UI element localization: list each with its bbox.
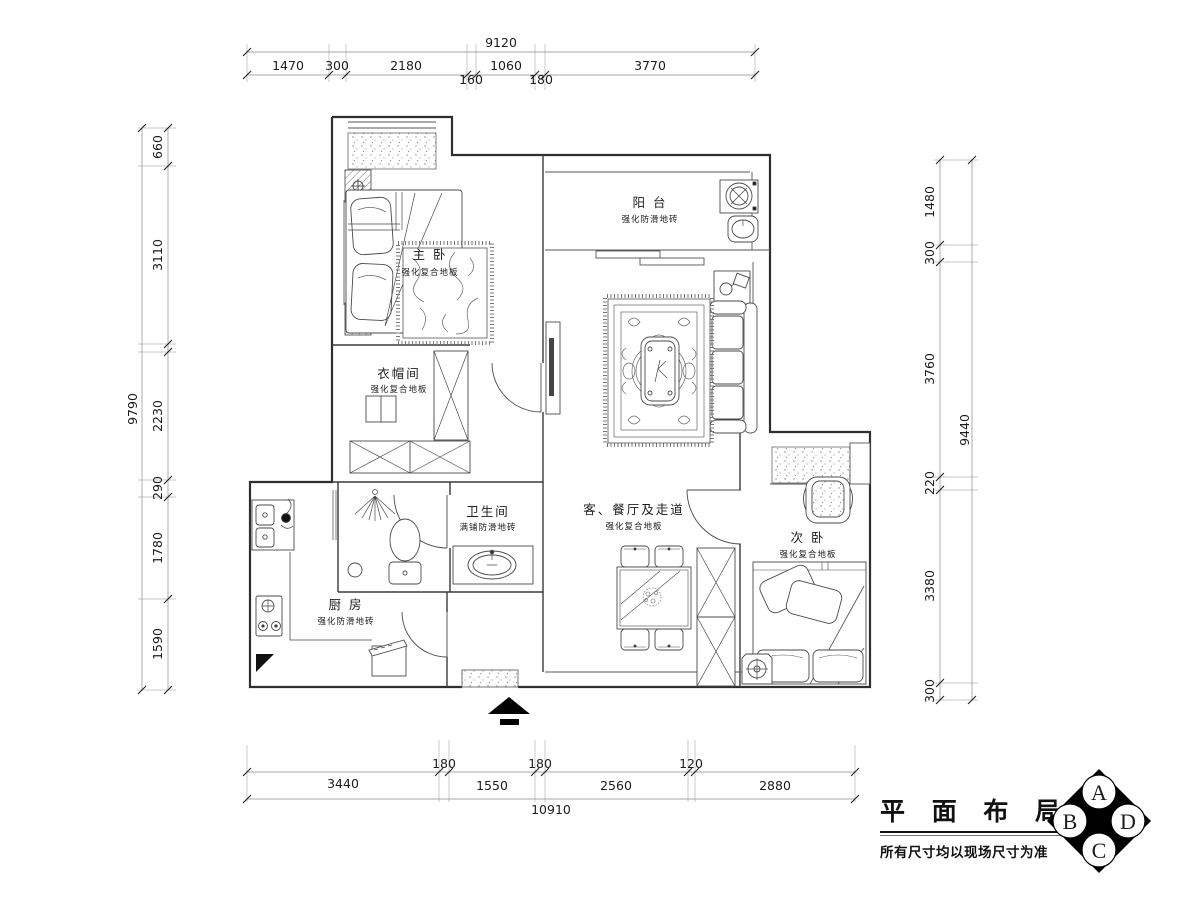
dim-segment: 3760	[922, 353, 937, 385]
washbasin-icon	[453, 546, 533, 584]
floor-plan-canvas: 9120 1470 300 2180 160 1060 180 3770 344…	[0, 0, 1200, 900]
room-floor-master: 强化复合地板	[401, 267, 458, 278]
tall-cabinet-icon	[697, 548, 735, 686]
coffee-table-icon	[641, 337, 679, 405]
room-label-bath: 卫生间	[466, 504, 510, 519]
dim-segment: 220	[922, 471, 937, 495]
room-floor-living: 强化复合地板	[605, 521, 662, 532]
room-floor-closet: 强化复合地板	[370, 384, 427, 395]
master-door	[492, 363, 541, 412]
dim-segment: 180	[432, 756, 456, 771]
entry-threshold	[462, 670, 518, 687]
dim-segment: 290	[150, 476, 165, 500]
room-label-closet: 衣帽间	[377, 366, 421, 381]
tv-icon	[546, 322, 560, 414]
dim-segment: 180	[528, 756, 552, 771]
dim-segment: 1480	[922, 186, 937, 218]
sofa-icon	[710, 301, 757, 433]
dining-chair-icon	[621, 629, 649, 650]
room-label-living: 客、餐厅及走道	[583, 502, 685, 517]
washing-machine-icon	[720, 180, 758, 213]
title-rule-thick	[880, 831, 1062, 833]
room-label-kitchen: 厨 房	[329, 597, 364, 612]
dimension-labels-left: 9790 660 3110 2230 290 1780 1590	[125, 135, 165, 660]
dim-segment: 3110	[150, 239, 165, 271]
dim-segment: 1060	[490, 58, 522, 73]
dim-segment: 160	[459, 72, 483, 87]
kitchen-door	[402, 612, 447, 657]
floor-drain-icon	[348, 563, 362, 577]
dimension-labels-bottom: 3440 180 1550 180 2560 120 2880 10910	[327, 756, 791, 817]
corner-column	[256, 654, 274, 672]
title-block: 平 面 布 局 图 所有尺寸均以现场尺寸为准	[880, 792, 1065, 861]
dining-chair-icon	[621, 546, 649, 567]
dim-total-top: 9120	[485, 35, 517, 50]
dim-segment: 3440	[327, 776, 359, 791]
dim-segment: 1780	[150, 532, 165, 564]
room-floor-second: 强化复合地板	[779, 549, 836, 560]
dim-segment: 180	[529, 72, 553, 87]
room-label-master: 主 卧	[413, 247, 448, 262]
dim-segment: 3770	[634, 58, 666, 73]
compass-letter-c: C	[1092, 838, 1107, 863]
dimension-labels-right: 9440 1480 300 3760 220 3380 300	[922, 186, 972, 703]
dimension-chain-bottom	[243, 740, 859, 803]
dim-segment: 2180	[390, 58, 422, 73]
second-bedroom-door	[687, 490, 741, 544]
dim-total-left: 9790	[125, 393, 140, 425]
room-label-balcony: 阳 台	[633, 195, 668, 210]
dim-segment: 2560	[600, 778, 632, 793]
room-label-second: 次 卧	[791, 530, 826, 545]
entry-arrow-icon	[488, 697, 530, 725]
compass-letter-b: B	[1063, 809, 1078, 834]
stove-icon	[256, 596, 282, 636]
dim-segment: 1590	[150, 628, 165, 660]
kitchen-fixtures	[252, 499, 407, 676]
room-floor-bath: 满铺防滑地砖	[459, 522, 516, 533]
dining-chair-icon	[655, 629, 683, 650]
fridge-icon	[369, 640, 407, 676]
title-rule-thin	[880, 835, 1062, 836]
compass-logo: A B D C	[1043, 765, 1155, 877]
toilet-icon	[389, 519, 421, 584]
dim-segment: 3380	[922, 570, 937, 602]
room-floor-balcony: 强化防滑地砖	[621, 214, 678, 225]
shower-icon	[355, 490, 395, 522]
room-floor-kitchen: 强化防滑地砖	[317, 616, 374, 627]
dim-segment: 300	[325, 58, 349, 73]
dim-segment: 300	[922, 241, 937, 265]
dim-segment: 300	[922, 679, 937, 703]
floor-plan-drawing: 9120 1470 300 2180 160 1060 180 3770 344…	[0, 0, 1200, 900]
drawing-title: 平 面 布 局 图	[880, 792, 1065, 828]
balcony-slider	[596, 251, 704, 265]
bedside-unit-icon	[742, 654, 772, 684]
balcony-fixtures	[720, 180, 758, 242]
dim-segment: 2880	[759, 778, 791, 793]
armchair-icon	[804, 477, 853, 523]
compass-letter-d: D	[1120, 809, 1136, 834]
dim-total-right: 9440	[957, 414, 972, 446]
kitchen-sink-icon	[252, 499, 294, 550]
second-bedroom-furniture	[742, 477, 866, 684]
dim-segment: 2230	[150, 400, 165, 432]
side-table-icon	[714, 271, 750, 304]
dim-segment: 660	[150, 135, 165, 159]
balcony-sink-icon	[728, 216, 758, 242]
dimension-labels-top: 9120 1470 300 2180 160 1060 180 3770	[272, 35, 666, 87]
dim-segment: 120	[679, 756, 703, 771]
dim-segment: 1470	[272, 58, 304, 73]
dining-set	[617, 546, 691, 650]
window-master	[348, 133, 436, 169]
compass-letter-a: A	[1091, 780, 1107, 805]
dim-segment: 1550	[476, 778, 508, 793]
dining-chair-icon	[655, 546, 683, 567]
drawing-note: 所有尺寸均以现场尺寸为准	[880, 841, 1065, 861]
dim-total-bottom: 10910	[531, 802, 571, 817]
